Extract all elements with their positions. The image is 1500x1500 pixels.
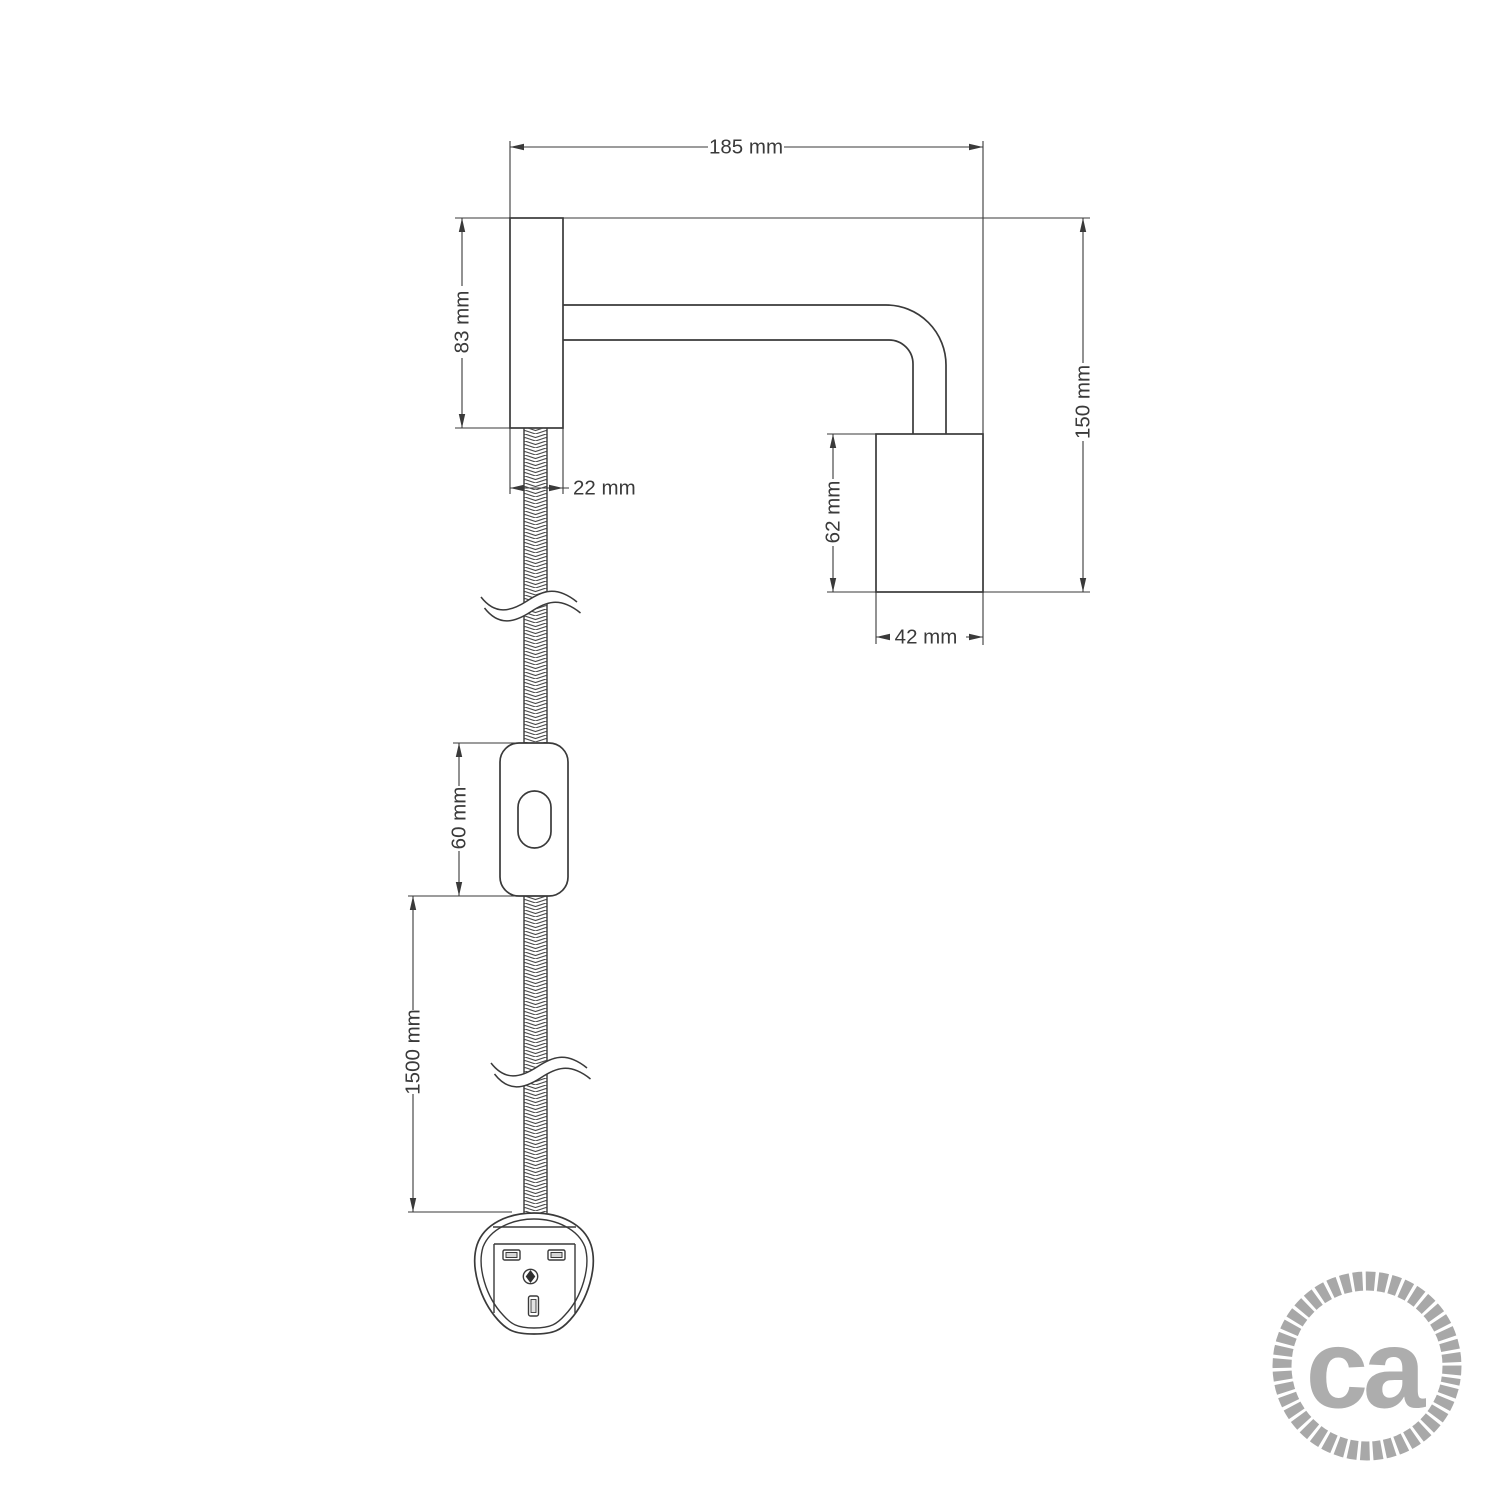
dim-plate-height-label: 83 mm <box>451 291 474 354</box>
plug-screw <box>523 1269 537 1283</box>
dim-cable-length-label: 1500 mm <box>402 1009 425 1094</box>
dim-total-width-label: 185 mm <box>709 136 783 159</box>
dim-socket-width-label: 42 mm <box>895 626 958 649</box>
power-plug <box>475 1213 593 1334</box>
brand-logo-text: ca <box>1306 1307 1426 1432</box>
dim-plate-width-label: 22 mm <box>573 477 636 500</box>
technical-drawing-page: 185 mm 83 mm 150 mm 62 mm 42 mm 22 mm 60… <box>0 0 1500 1500</box>
arm-tube-outer-line <box>563 305 946 434</box>
dim-switch-length-label: 60 mm <box>448 787 471 850</box>
lamp-socket <box>876 434 983 592</box>
lamp-body <box>510 218 983 592</box>
arm-tube-inner-line <box>563 340 913 434</box>
plug-fuse <box>529 1296 539 1316</box>
switch-rocker <box>518 791 551 848</box>
wall-plate <box>510 218 563 428</box>
brand-logo: ca <box>1266 1265 1468 1467</box>
plug-pin-left <box>503 1250 520 1260</box>
lamp-dimension-diagram: 185 mm 83 mm 150 mm 62 mm 42 mm 22 mm 60… <box>0 0 1500 1500</box>
plug-pin-right <box>548 1250 565 1260</box>
dim-total-height-label: 150 mm <box>1072 365 1095 439</box>
dim-socket-height-label: 62 mm <box>822 481 845 544</box>
inline-switch <box>500 743 568 896</box>
